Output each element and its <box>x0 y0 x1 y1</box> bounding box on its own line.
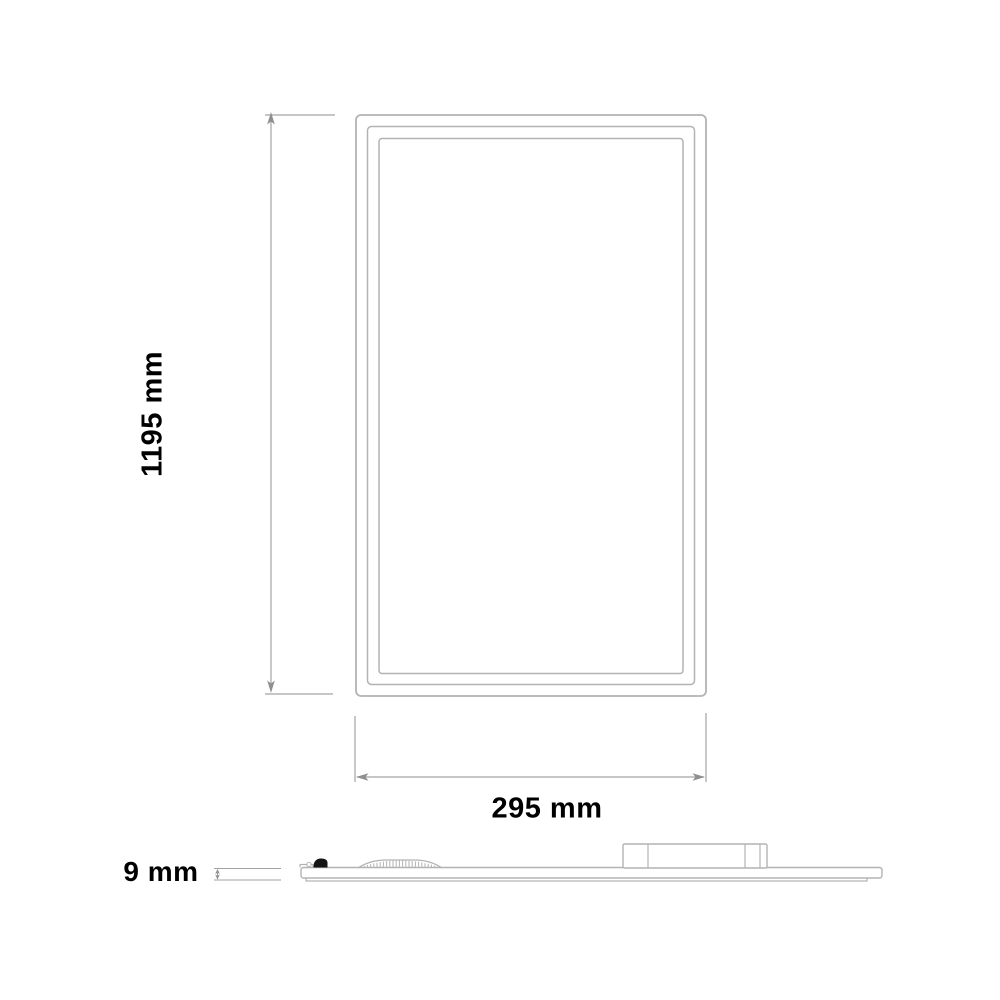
thickness-dimension-label: 9 mm <box>123 858 198 886</box>
side-view <box>300 844 882 881</box>
width-dimension <box>355 713 706 782</box>
height-dimension <box>265 112 335 694</box>
technical-drawing-svg <box>0 0 1000 1000</box>
front-inner-frame <box>379 139 683 674</box>
panel-body <box>301 868 882 879</box>
front-view <box>356 115 706 696</box>
height-dimension-label: 1195 mm <box>139 351 168 477</box>
front-middle-frame <box>368 127 695 685</box>
end-screw-icon <box>307 862 311 866</box>
thickness-dimension <box>214 869 281 881</box>
mounting-clip-icon <box>314 859 327 867</box>
width-dimension-label: 295 mm <box>491 795 602 824</box>
front-outer-frame <box>356 115 706 696</box>
dimension-drawing-page: 1195 mm 295 mm 9 mm <box>0 0 1000 1000</box>
